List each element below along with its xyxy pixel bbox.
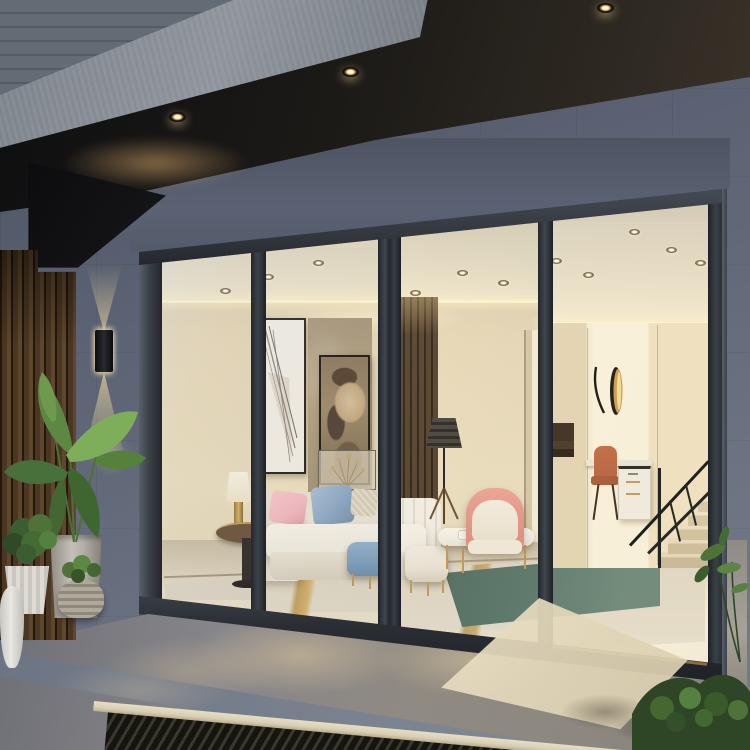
right-plant-group bbox=[628, 512, 750, 750]
glass-panel-3 bbox=[401, 240, 538, 630]
photo-canvas bbox=[0, 0, 750, 750]
glass-panel-2 bbox=[266, 248, 378, 612]
recessed-downlight-icon bbox=[597, 3, 614, 13]
leafy-bush bbox=[3, 514, 57, 564]
door-mullion bbox=[251, 230, 266, 660]
recessed-downlight-icon bbox=[169, 112, 186, 122]
glass-panel-1 bbox=[162, 255, 251, 600]
trailing-plant bbox=[62, 555, 101, 583]
left-plant-group bbox=[0, 360, 160, 625]
recessed-downlight-icon bbox=[342, 67, 359, 77]
door-mullion-double bbox=[378, 226, 401, 666]
